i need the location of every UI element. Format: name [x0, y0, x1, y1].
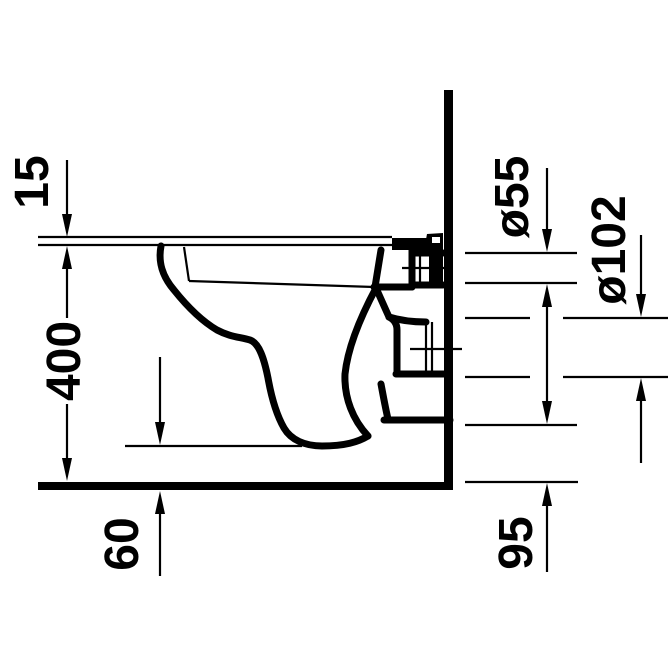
wall: [444, 90, 453, 490]
flush-housing-left: [375, 250, 381, 287]
dim-label-outlet-height: 95: [490, 516, 543, 569]
dimension-seat-thickness: [62, 160, 72, 237]
floor: [38, 482, 453, 490]
inner-bowl-line: [189, 281, 374, 287]
extension-lines: [465, 253, 668, 482]
technical-drawing-canvas: 15 400 60 ø55 ø102 95: [0, 0, 672, 672]
inner-rim-line: [184, 247, 189, 281]
dim-label-inlet-diameter: ø55: [486, 156, 539, 239]
bowl-outer-profile: [160, 246, 368, 446]
dimension-underside-clearance: [155, 357, 165, 576]
dimension-inlet-diameter: [542, 168, 552, 424]
toilet-section-drawing: 15 400 60 ø55 ø102 95: [0, 0, 672, 672]
dimension-outlet-diameter: [636, 235, 646, 463]
dim-label-underside-clearance: 60: [96, 517, 149, 570]
trap-curve: [345, 288, 376, 436]
dimension-outlet-height: [542, 483, 552, 572]
outlet-left-wall: [389, 317, 397, 374]
rear-top-section: [392, 233, 443, 250]
dim-label-outlet-diameter: ø102: [583, 195, 636, 304]
mid-diagonal: [376, 288, 389, 317]
dim-label-bowl-height: 400: [38, 321, 91, 401]
fixing-bump-notch: [432, 237, 440, 243]
rear-support-edge: [381, 384, 388, 419]
dim-label-seat-thickness: 15: [6, 155, 59, 208]
outlet-pipe: [410, 322, 462, 372]
toilet-body: [38, 237, 450, 446]
